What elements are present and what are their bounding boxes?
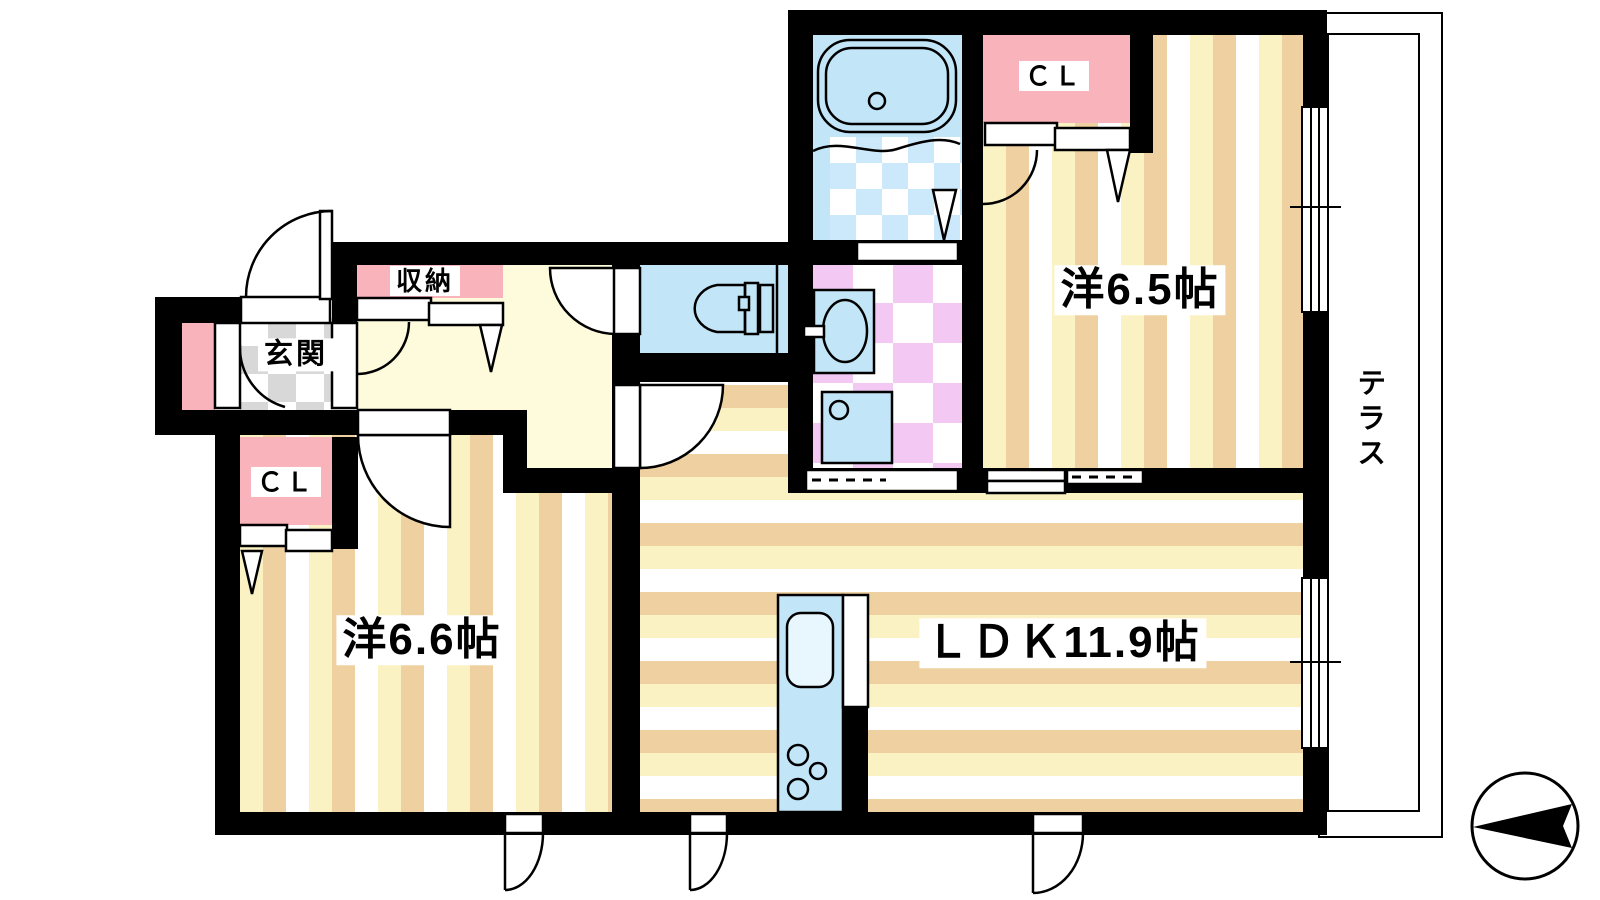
washroom-floor xyxy=(813,263,962,468)
floor-plan: 玄関 収納 ＣＬ ＣＬ 洋6.5帖 洋6.6帖 ＬＤＫ11.9帖 テラス xyxy=(0,0,1600,900)
hallway-floor-step xyxy=(527,410,612,468)
wall xyxy=(155,410,527,435)
wall xyxy=(215,812,1327,835)
entrance-label: 玄関 xyxy=(258,338,334,371)
wall xyxy=(640,353,788,382)
wall xyxy=(813,240,962,265)
wall xyxy=(788,10,1327,35)
wall xyxy=(160,297,246,323)
north-arrow-icon xyxy=(1472,773,1578,879)
western-room-65-label: 洋6.5帖 xyxy=(1054,265,1225,315)
wall xyxy=(1303,10,1327,835)
wall xyxy=(788,10,813,493)
toilet-room-floor xyxy=(640,263,788,353)
closet-west65-label: ＣＬ xyxy=(1019,61,1089,91)
closet-west66-label: ＣＬ xyxy=(251,467,321,497)
wall xyxy=(843,705,868,812)
wall xyxy=(215,430,240,835)
storage-label: 収納 xyxy=(390,266,460,296)
wall xyxy=(788,468,1327,493)
entrance-porch xyxy=(182,323,215,410)
wall xyxy=(612,242,640,812)
wall xyxy=(1130,10,1153,153)
ldk-label: ＬＤＫ11.9帖 xyxy=(919,618,1206,668)
western-room-66-label: 洋6.6帖 xyxy=(336,615,507,665)
wall xyxy=(330,242,790,265)
bathroom-tile xyxy=(830,137,962,240)
terrace-label: テラス xyxy=(1352,368,1383,473)
wall xyxy=(332,242,357,323)
wall xyxy=(503,468,638,493)
wall xyxy=(962,10,983,493)
wall xyxy=(332,437,358,549)
